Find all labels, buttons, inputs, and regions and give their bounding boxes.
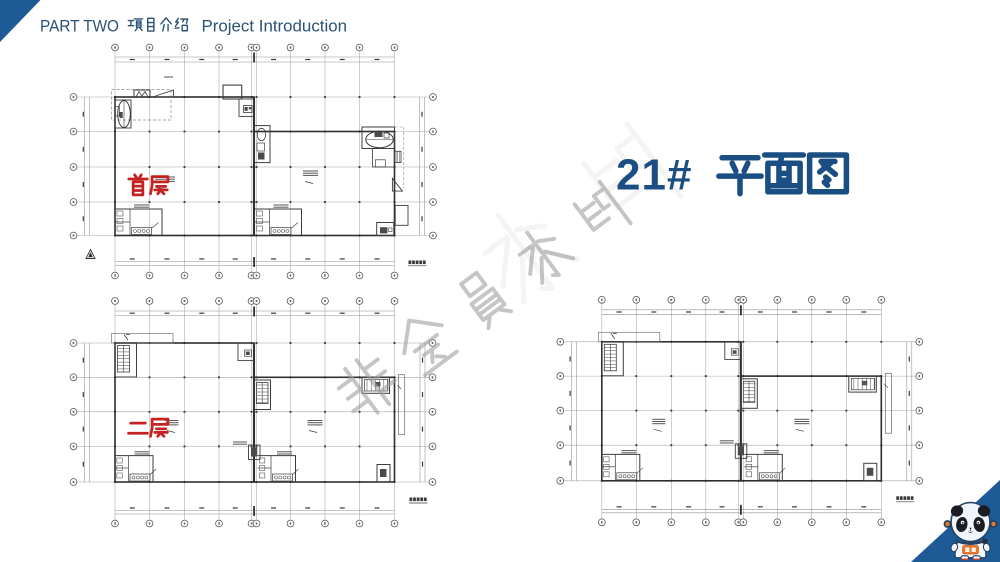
svg-text:PART TWO: PART TWO bbox=[40, 17, 119, 35]
svg-text:Project Introduction: Project Introduction bbox=[202, 17, 348, 35]
svg-text:21#: 21# bbox=[616, 151, 692, 200]
